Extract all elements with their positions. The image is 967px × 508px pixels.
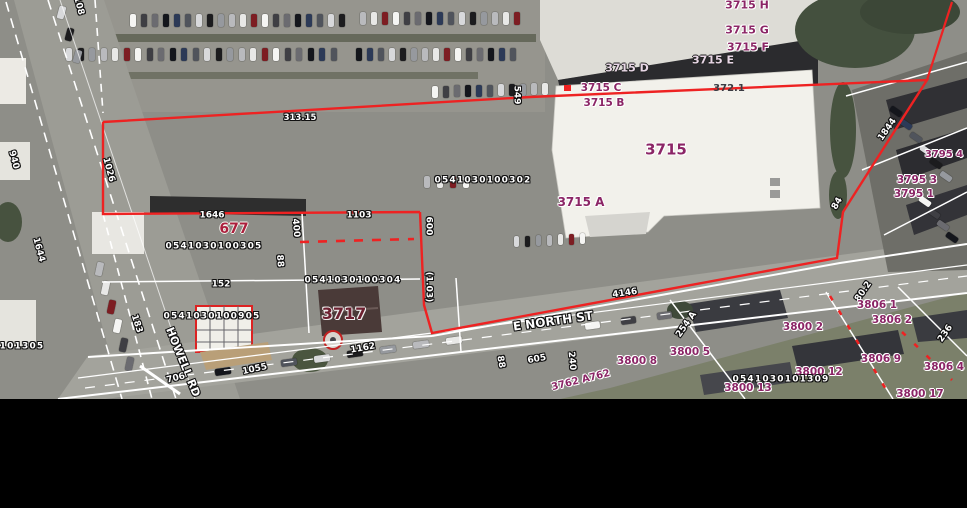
dim-706: 706	[166, 372, 186, 385]
parcel-3715-c: 3715 C	[581, 83, 622, 94]
dim-313-15: 313.15	[284, 114, 317, 123]
dim-400: 400	[290, 218, 301, 238]
parcel-3806-1: 3806 1	[857, 300, 897, 311]
parcel-3715: 3715	[645, 143, 687, 158]
dim-88-left: 88	[274, 254, 284, 267]
parcel-3715-b: 3715 B	[584, 98, 625, 109]
dim-84: 84	[831, 196, 845, 211]
parcel-3800-13: 3800 13	[724, 383, 772, 394]
parcel-3715-f: 3715 F	[727, 42, 769, 53]
map-stage: 3715 H3715 G3715 F3715 E3715 D3715 C372.…	[0, 0, 967, 508]
parcel-3800-2: 3800 2	[783, 322, 823, 333]
street-howell-rd: HOWELL RD	[164, 326, 202, 398]
parcel-id-905: 0541030100905	[163, 313, 260, 322]
aerial-map[interactable]: 3715 H3715 G3715 F3715 E3715 D3715 C372.…	[0, 0, 967, 399]
parcel-677: 677	[219, 222, 248, 236]
dim-88-road: 88	[494, 355, 505, 369]
dim-152: 152	[212, 281, 231, 290]
dim-108: 108	[71, 0, 85, 16]
parcel-id-302: 0541030100302	[434, 177, 531, 186]
parcel-3715-h: 3715 H	[725, 0, 769, 11]
parcel-3806-2: 3806 2	[872, 315, 912, 326]
dim-236: 236	[937, 324, 955, 345]
dim-254-a: 254 A	[675, 311, 699, 340]
dim-1644: 1644	[30, 237, 45, 264]
parcel-id-101305-partial: 101305	[0, 343, 44, 352]
parcel-3715-g: 3715 G	[725, 25, 768, 36]
dim-372-1: 372.1	[713, 84, 745, 94]
dim-183: 183	[129, 314, 143, 335]
dim-1103: 1103	[346, 212, 371, 221]
parcel-3806-9: 3806 9	[861, 354, 901, 365]
dim-940: 940	[6, 150, 20, 170]
parcel-3715-e: 3715 E	[692, 55, 734, 66]
parcel-3795-3: 3795 3	[897, 175, 937, 186]
dim-605: 605	[527, 354, 547, 366]
bottom-letterbox	[0, 399, 967, 508]
dim-1055: 1055	[242, 363, 268, 377]
parcel-id-305: 0541030100305	[165, 243, 262, 252]
dim-600: 600	[424, 217, 433, 236]
parcel-3800-8: 3800 8	[617, 356, 657, 367]
dim-1026: 1026	[100, 157, 115, 184]
dim-1-03-acres: (1.03)	[424, 272, 433, 302]
labels-layer: 3715 H3715 G3715 F3715 E3715 D3715 C372.…	[0, 0, 967, 399]
parcel-3795-4: 3795 4	[925, 150, 963, 160]
parcel-3806-4: 3806 4	[924, 362, 964, 373]
parcel-3762-a: 3762 A762	[551, 369, 612, 393]
parcel-3800-5: 3800 5	[670, 347, 710, 358]
dim-240: 240	[566, 351, 577, 371]
parcel-3715-d: 3715 D	[605, 63, 649, 74]
parcel-3800-17: 3800 17	[896, 389, 944, 399]
street-e-north-st: E NORTH ST	[512, 309, 593, 332]
parcel-id-304: 0541030100304	[304, 277, 401, 286]
parcel-3717: 3717	[322, 306, 367, 322]
parcel-3715-a: 3715 A	[558, 196, 605, 208]
dim-1844: 1844	[877, 117, 899, 143]
parcel-3795-1: 3795 1	[894, 189, 934, 200]
dim-4146: 4146	[612, 288, 638, 300]
dim-1646: 1646	[199, 212, 224, 221]
dim-1162: 1162	[350, 342, 376, 355]
dim-549: 549	[512, 86, 521, 105]
